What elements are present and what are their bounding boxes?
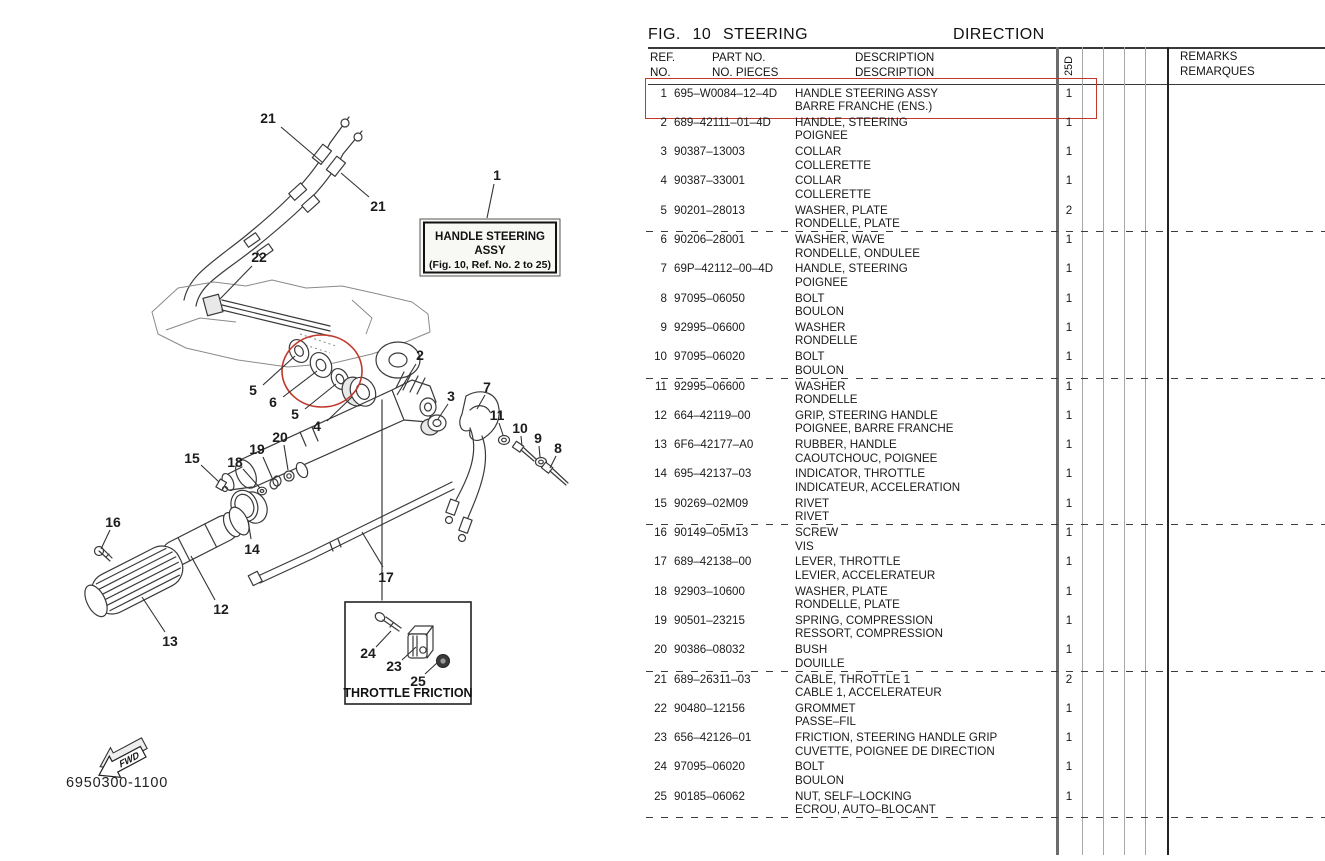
row-ref: 10 bbox=[645, 350, 667, 364]
row-description-fr: RESSORT, COMPRESSION bbox=[795, 627, 943, 641]
row-description-en: GRIP, STEERING HANDLE bbox=[795, 409, 938, 423]
row-part-number: 90501–23215 bbox=[674, 614, 745, 628]
group-separator bbox=[646, 671, 1325, 672]
table-row: 490387–33001COLLARCOLLERETTE1 bbox=[0, 173, 1325, 202]
row-description-fr: CAOUTCHOUC, POIGNEE bbox=[795, 452, 937, 466]
row-part-number: 90386–08032 bbox=[674, 643, 745, 657]
col-header-part-1: PART NO. bbox=[712, 51, 765, 64]
row-ref: 11 bbox=[645, 380, 667, 394]
table-row: 2090386–08032BUSHDOUILLE1 bbox=[0, 642, 1325, 671]
col-header-remarks-1: REMARKS bbox=[1180, 50, 1237, 63]
row-description-fr: BOULON bbox=[795, 305, 844, 319]
row-description-en: WASHER bbox=[795, 380, 845, 394]
row-description-en: WASHER bbox=[795, 321, 845, 335]
row-qty: 1 bbox=[1056, 380, 1082, 394]
row-qty: 1 bbox=[1056, 174, 1082, 188]
row-qty: 1 bbox=[1056, 262, 1082, 276]
row-description-en: BOLT bbox=[795, 292, 824, 306]
table-row: 2689–42111–01–4DHANDLE, STEERINGPOIGNEE1 bbox=[0, 115, 1325, 144]
row-ref: 18 bbox=[645, 585, 667, 599]
table-row: 590201–28013WASHER, PLATERONDELLE, PLATE… bbox=[0, 203, 1325, 232]
row-description-en: LEVER, THROTTLE bbox=[795, 555, 900, 569]
row-description-en: COLLAR bbox=[795, 145, 841, 159]
row-part-number: 90201–28013 bbox=[674, 204, 745, 218]
row-part-number: 90387–33001 bbox=[674, 174, 745, 188]
row-description-fr: BOULON bbox=[795, 364, 844, 378]
table-row: 769P–42112–00–4DHANDLE, STEERINGPOIGNEE1 bbox=[0, 261, 1325, 290]
row-ref: 17 bbox=[645, 555, 667, 569]
row-description-fr: LEVIER, ACCELERATEUR bbox=[795, 569, 935, 583]
row-part-number: 92995–06600 bbox=[674, 321, 745, 335]
row-description-fr: ECROU, AUTO–BLOCANT bbox=[795, 803, 936, 817]
table-row: 1192995–06600WASHERRONDELLE1 bbox=[0, 379, 1325, 408]
col-header-model-25d: 25D bbox=[1054, 53, 1084, 79]
row-description-fr: COLLERETTE bbox=[795, 159, 871, 173]
table-row: 2497095–06020BOLTBOULON1 bbox=[0, 759, 1325, 788]
row-description-fr: RONDELLE bbox=[795, 334, 858, 348]
figure-title: FIG. 10 STEERING bbox=[648, 26, 808, 44]
row-ref: 14 bbox=[645, 467, 667, 481]
row-part-number: 90185–06062 bbox=[674, 790, 745, 804]
row-qty: 1 bbox=[1056, 760, 1082, 774]
group-separator bbox=[646, 231, 1325, 232]
row-qty: 1 bbox=[1056, 790, 1082, 804]
row-ref: 24 bbox=[645, 760, 667, 774]
row-part-number: 689–42138–00 bbox=[674, 555, 751, 569]
row-description-en: INDICATOR, THROTTLE bbox=[795, 467, 925, 481]
table-row: 14695–42137–03INDICATOR, THROTTLEINDICAT… bbox=[0, 466, 1325, 495]
row-description-en: WASHER, PLATE bbox=[795, 585, 888, 599]
row-qty: 1 bbox=[1056, 116, 1082, 130]
row-description-en: RIVET bbox=[795, 497, 829, 511]
row-qty: 1 bbox=[1056, 438, 1082, 452]
row-qty: 1 bbox=[1056, 467, 1082, 481]
row-part-number: 90206–28001 bbox=[674, 233, 745, 247]
row-description-fr: DOUILLE bbox=[795, 657, 845, 671]
row-qty: 1 bbox=[1056, 233, 1082, 247]
table-row: 690206–28001WASHER, WAVERONDELLE, ONDULE… bbox=[0, 232, 1325, 261]
table-row: 1695–W0084–12–4DHANDLE STEERING ASSYBARR… bbox=[0, 86, 1325, 115]
row-description-fr: RONDELLE, ONDULEE bbox=[795, 247, 920, 261]
row-ref: 1 bbox=[645, 87, 667, 101]
row-description-en: SPRING, COMPRESSION bbox=[795, 614, 933, 628]
row-description-en: WASHER, WAVE bbox=[795, 233, 885, 247]
row-description-fr: BARRE FRANCHE (ENS.) bbox=[795, 100, 932, 114]
row-part-number: 695–42137–03 bbox=[674, 467, 751, 481]
row-ref: 9 bbox=[645, 321, 667, 335]
table-row: 136F6–42177–A0RUBBER, HANDLECAOUTCHOUC, … bbox=[0, 437, 1325, 466]
table-row: 1892903–10600WASHER, PLATERONDELLE, PLAT… bbox=[0, 584, 1325, 613]
col-header-desc-1: DESCRIPTION bbox=[855, 51, 934, 64]
row-ref: 13 bbox=[645, 438, 667, 452]
row-ref: 8 bbox=[645, 292, 667, 306]
row-part-number: 90269–02M09 bbox=[674, 497, 748, 511]
row-description-fr: INDICATEUR, ACCELERATION bbox=[795, 481, 960, 495]
row-ref: 23 bbox=[645, 731, 667, 745]
row-qty: 1 bbox=[1056, 643, 1082, 657]
col-header-ref-1: REF. bbox=[650, 51, 675, 64]
row-ref: 12 bbox=[645, 409, 667, 423]
row-description-fr: CUVETTE, POIGNEE DE DIRECTION bbox=[795, 745, 995, 759]
row-description-fr: RONDELLE, PLATE bbox=[795, 217, 900, 231]
row-description-fr: RIVET bbox=[795, 510, 829, 524]
row-description-en: WASHER, PLATE bbox=[795, 204, 888, 218]
row-part-number: 664–42119–00 bbox=[674, 409, 751, 423]
table-row: 1590269–02M09RIVETRIVET1 bbox=[0, 496, 1325, 525]
table-row: 2290480–12156GROMMETPASSE–FIL1 bbox=[0, 701, 1325, 730]
group-separator bbox=[646, 817, 1325, 818]
row-qty: 2 bbox=[1056, 204, 1082, 218]
row-part-number: 689–42111–01–4D bbox=[674, 116, 771, 130]
row-description-fr: BOULON bbox=[795, 774, 844, 788]
row-ref: 5 bbox=[645, 204, 667, 218]
parts-catalog-page: { "page": { "fig_title": "FIG. 10 STEERI… bbox=[0, 0, 1325, 861]
row-ref: 22 bbox=[645, 702, 667, 716]
row-part-number: 92995–06600 bbox=[674, 380, 745, 394]
row-description-fr: RONDELLE, PLATE bbox=[795, 598, 900, 612]
row-description-fr: CABLE 1, ACCELERATEUR bbox=[795, 686, 942, 700]
row-qty: 1 bbox=[1056, 350, 1082, 364]
row-ref: 20 bbox=[645, 643, 667, 657]
row-description-en: SCREW bbox=[795, 526, 838, 540]
row-qty: 1 bbox=[1056, 526, 1082, 540]
row-part-number: 90149–05M13 bbox=[674, 526, 748, 540]
row-description-en: BOLT bbox=[795, 760, 824, 774]
row-part-number: 689–26311–03 bbox=[674, 673, 751, 687]
row-ref: 3 bbox=[645, 145, 667, 159]
row-ref: 6 bbox=[645, 233, 667, 247]
row-ref: 16 bbox=[645, 526, 667, 540]
row-qty: 1 bbox=[1056, 731, 1082, 745]
group-separator bbox=[646, 378, 1325, 379]
row-qty: 1 bbox=[1056, 87, 1082, 101]
row-qty: 1 bbox=[1056, 497, 1082, 511]
row-ref: 4 bbox=[645, 174, 667, 188]
row-ref: 2 bbox=[645, 116, 667, 130]
row-ref: 25 bbox=[645, 790, 667, 804]
table-row: 2590185–06062NUT, SELF–LOCKINGECROU, AUT… bbox=[0, 789, 1325, 818]
row-description-en: HANDLE, STEERING bbox=[795, 116, 908, 130]
row-description-en: GROMMET bbox=[795, 702, 856, 716]
row-description-fr: POIGNEE bbox=[795, 276, 848, 290]
row-description-fr: PASSE–FIL bbox=[795, 715, 856, 729]
row-part-number: 69P–42112–00–4D bbox=[674, 262, 773, 276]
row-part-number: 97095–06020 bbox=[674, 350, 745, 364]
table-row: 390387–13003COLLARCOLLERETTE1 bbox=[0, 144, 1325, 173]
row-qty: 1 bbox=[1056, 145, 1082, 159]
row-description-en: BUSH bbox=[795, 643, 827, 657]
table-row: 12664–42119–00GRIP, STEERING HANDLEPOIGN… bbox=[0, 408, 1325, 437]
figure-title-french: DIRECTION bbox=[953, 26, 1045, 44]
row-description-en: HANDLE STEERING ASSY bbox=[795, 87, 938, 101]
table-row: 17689–42138–00LEVER, THROTTLELEVIER, ACC… bbox=[0, 554, 1325, 583]
table-row: 1990501–23215SPRING, COMPRESSIONRESSORT,… bbox=[0, 613, 1325, 642]
row-ref: 19 bbox=[645, 614, 667, 628]
table-top-rule bbox=[648, 47, 1325, 49]
row-ref: 7 bbox=[645, 262, 667, 276]
row-qty: 1 bbox=[1056, 614, 1082, 628]
table-row: 23656–42126–01FRICTION, STEERING HANDLE … bbox=[0, 730, 1325, 759]
row-part-number: 97095–06050 bbox=[674, 292, 745, 306]
row-ref: 15 bbox=[645, 497, 667, 511]
row-qty: 1 bbox=[1056, 585, 1082, 599]
table-row: 21689–26311–03CABLE, THROTTLE 1CABLE 1, … bbox=[0, 672, 1325, 701]
table-row: 897095–06050BOLTBOULON1 bbox=[0, 291, 1325, 320]
row-part-number: 6F6–42177–A0 bbox=[674, 438, 753, 452]
table-row: 992995–06600WASHERRONDELLE1 bbox=[0, 320, 1325, 349]
table-row: 1690149–05M13SCREWVIS1 bbox=[0, 525, 1325, 554]
row-description-fr: VIS bbox=[795, 540, 814, 554]
row-qty: 1 bbox=[1056, 292, 1082, 306]
table-row: 1097095–06020BOLTBOULON1 bbox=[0, 349, 1325, 378]
row-description-fr: RONDELLE bbox=[795, 393, 858, 407]
row-part-number: 97095–06020 bbox=[674, 760, 745, 774]
row-part-number: 90387–13003 bbox=[674, 145, 745, 159]
row-qty: 1 bbox=[1056, 702, 1082, 716]
row-description-en: NUT, SELF–LOCKING bbox=[795, 790, 912, 804]
row-qty: 1 bbox=[1056, 409, 1082, 423]
row-qty: 1 bbox=[1056, 321, 1082, 335]
row-qty: 2 bbox=[1056, 673, 1082, 687]
row-part-number: 92903–10600 bbox=[674, 585, 745, 599]
row-part-number: 695–W0084–12–4D bbox=[674, 87, 777, 101]
row-part-number: 656–42126–01 bbox=[674, 731, 751, 745]
row-ref: 21 bbox=[645, 673, 667, 687]
group-separator bbox=[646, 524, 1325, 525]
row-description-en: FRICTION, STEERING HANDLE GRIP bbox=[795, 731, 997, 745]
row-description-en: HANDLE, STEERING bbox=[795, 262, 908, 276]
row-description-fr: POIGNEE bbox=[795, 129, 848, 143]
row-description-fr: COLLERETTE bbox=[795, 188, 871, 202]
row-description-en: BOLT bbox=[795, 350, 824, 364]
row-part-number: 90480–12156 bbox=[674, 702, 745, 716]
col-header-remarks-2: REMARQUES bbox=[1180, 65, 1255, 78]
row-description-en: CABLE, THROTTLE 1 bbox=[795, 673, 910, 687]
row-description-en: RUBBER, HANDLE bbox=[795, 438, 897, 452]
row-qty: 1 bbox=[1056, 555, 1082, 569]
row-description-en: COLLAR bbox=[795, 174, 841, 188]
row-description-fr: POIGNEE, BARRE FRANCHE bbox=[795, 422, 953, 436]
